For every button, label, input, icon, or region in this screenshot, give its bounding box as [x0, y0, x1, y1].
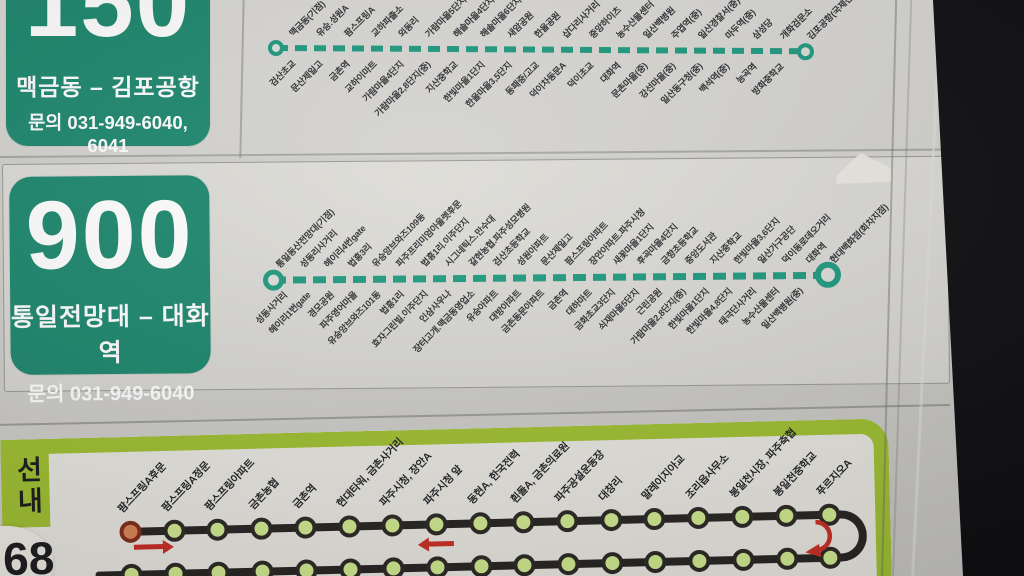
stop-dot: [469, 512, 492, 535]
return-stop-dot: [295, 559, 318, 576]
return-stop-dot: [426, 556, 449, 576]
return-stop-dot: [732, 549, 755, 572]
return-stop-dot: [208, 561, 231, 576]
stop-dot: [556, 510, 579, 533]
return-stop-dot: [382, 557, 405, 576]
start-direction-arrow-icon: [134, 544, 164, 549]
route-terminus-ring: [262, 269, 283, 290]
return-stop-dot: [776, 548, 799, 571]
arrow-head: [418, 537, 429, 551]
route-terminus-ring: [815, 262, 841, 288]
stop-dot: [600, 509, 623, 532]
route-terminus-ring: [268, 40, 284, 56]
stop-dot: [687, 507, 710, 530]
route-line: [276, 45, 805, 54]
stop-label: 금촌역: [289, 481, 319, 512]
arrow-head: [163, 539, 174, 553]
stop-dot: [512, 511, 535, 534]
stop-label: 덕이초교: [564, 59, 596, 91]
return-stop-dot: [164, 562, 187, 576]
route-terminus-ring: [796, 43, 813, 60]
stop-label: 파주시청 앞: [420, 462, 465, 509]
stop-dot: [775, 505, 798, 528]
return-stop-dot: [557, 553, 580, 576]
stop-dot: [643, 508, 666, 531]
stop-label: 대창리: [595, 473, 625, 504]
stop-dot: [338, 515, 361, 538]
return-stop-dot: [513, 554, 536, 576]
stop-label: 한울공원: [531, 9, 563, 41]
route-150-map: 맥금동(기점)유승.성원A팜스프링A교하파출소외동리가람마을5단지해솔마을4단지…: [0, 0, 1024, 170]
return-stop-dot: [251, 560, 274, 576]
route-900-map: 통일동산전망대(기점)성동리사거리헤이리4번gate법흥3리유승앙브와즈109동…: [3, 157, 949, 391]
return-stop-dot: [120, 564, 143, 576]
return-direction-arrow-icon: [428, 541, 454, 546]
u-turn-arrow-icon: [801, 516, 842, 559]
stop-label: 김포공항(국제선/국내선): [804, 0, 876, 42]
route-68-map: 팜스프링A후문팜스프링A정문팜스프링아파트금촌농협금촌역현대타워, 금촌사거리파…: [0, 405, 1016, 576]
stop-dot: [425, 513, 448, 536]
route-900-panel: 900 통일전망대 – 대화역 문의 031-949-6040 통일동산전망대(…: [2, 156, 950, 392]
return-stop-dot: [645, 551, 668, 574]
stop-label: 금촌농협: [245, 475, 282, 513]
stop-dot: [381, 514, 404, 537]
stop-dot: [294, 516, 317, 539]
stop-label: 푸르지오A: [813, 456, 855, 499]
stop-label: 조리읍사무소: [682, 451, 732, 502]
stop-label: 현대백화점(회차지점): [827, 201, 891, 266]
return-stop-dot: [688, 550, 711, 573]
return-stop-dot: [470, 555, 493, 576]
route-line-return: [95, 554, 829, 576]
stop-dot: [731, 506, 754, 529]
stop-dot: [250, 517, 273, 540]
stop-label: 말레이지아교: [639, 452, 689, 503]
return-stop-dot: [339, 558, 362, 576]
bus-route-signs-photo: 150 맥금동 – 김포공항 문의 031-949-6040, 6041 맥금동…: [0, 0, 1024, 576]
route-68-sign: 선 내 68 팜스프링A후문팜스프링A정문팜스프링아파트금촌농협금촌역현대타워,…: [0, 405, 1016, 576]
stop-dot: [207, 518, 230, 541]
route-line: [273, 271, 828, 283]
return-stop-dot: [601, 552, 624, 575]
start-stop-dot: [119, 521, 142, 544]
